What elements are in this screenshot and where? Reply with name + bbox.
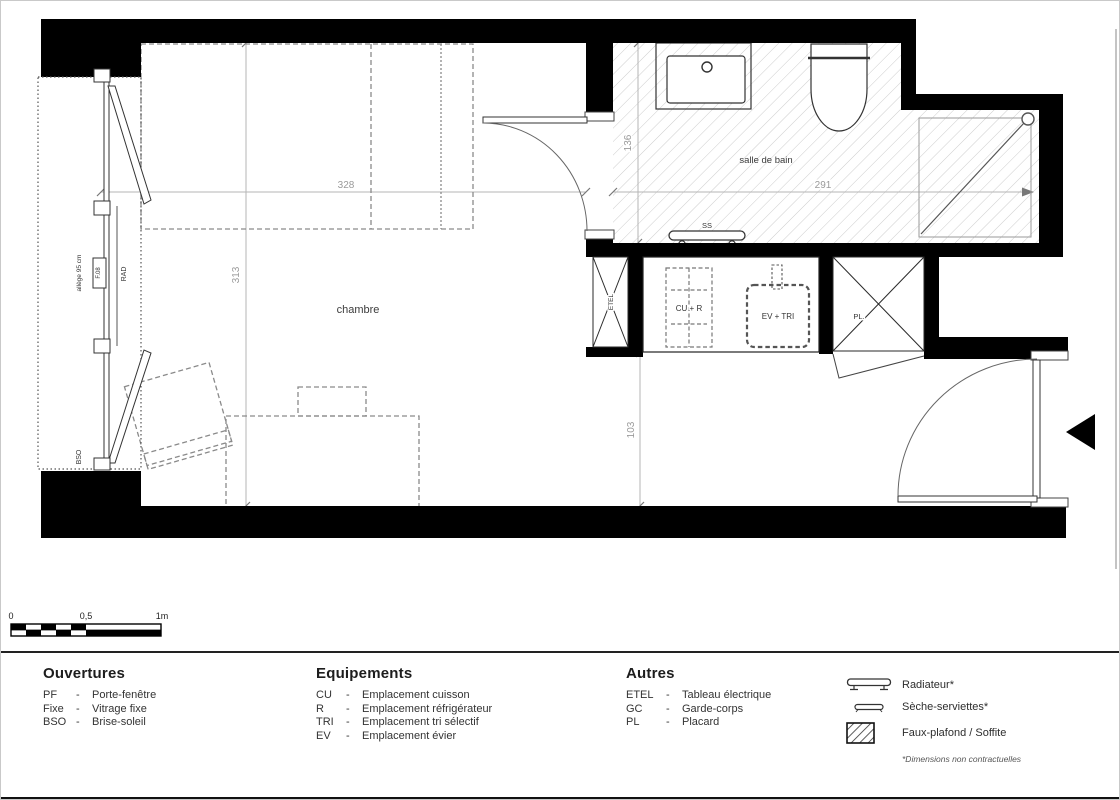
legend-label: Placard [682,716,719,730]
legend-abbr: PL [626,716,666,730]
legend-equipements: Equipements CU - Emplacement cuisson R -… [316,665,492,743]
dim-bedroom-depth: 313 [231,266,242,283]
label-sill: allège 95 cm [76,255,83,292]
legend-item: Fixe - Vitrage fixe [43,703,156,717]
legend-radiator-row: Radiateur* [846,677,1021,692]
label-sunbreak: BSO [76,449,83,464]
legend-soffit-label: Faux-plafond / Soffite [902,727,1006,739]
label-radiator: RAD [121,267,128,282]
shower-head [1022,113,1034,125]
closet-box [833,257,924,378]
legend-dash: - [666,703,682,717]
legend-item: R - Emplacement réfrigérateur [316,703,492,717]
legend-ouvertures-title: Ouvertures [43,665,156,682]
legend-towel-dryer-row: Sèche-serviettes* [846,701,1021,713]
label-closet: PL. [853,312,864,321]
legend-dash: - [346,703,362,717]
legend-dash: - [346,689,362,703]
soffit-hatch-icon [846,722,892,744]
desk [226,387,419,507]
legend-symbols: Radiateur* Sèche-serviettes* [846,677,1021,764]
floor-plan-svg: chambre salle de bain 328 291 313 136 10… [1,1,1120,651]
legend-item: GC - Garde-corps [626,703,771,717]
legend-abbr: Fixe [43,703,76,717]
legend-autres: Autres ETEL - Tableau électrique GC - Ga… [626,665,771,730]
dim-bathroom-depth: 136 [623,134,634,151]
entry-arrow-icon [1066,414,1095,450]
legend-label: Emplacement tri sélectif [362,716,479,730]
legend-label: Porte-fenêtre [92,689,156,703]
scale-05: 0,5 [80,611,93,621]
door-leaf [483,117,587,123]
window-bso [38,69,151,470]
label-electrical: ETEL [608,293,615,310]
room-label-bathroom: salle de bain [739,155,792,166]
label-sink-sorting: EV + TRI [762,312,795,321]
legend-towel-dryer-label: Sèche-serviettes* [902,701,988,713]
legend-abbr: R [316,703,346,717]
legend-abbr: BSO [43,716,76,730]
scale-0: 0 [8,611,13,621]
legend-dash: - [76,689,92,703]
legend-label: Tableau électrique [682,689,771,703]
legend-item: EV - Emplacement évier [316,730,492,744]
door-swing [898,359,1037,496]
window-sash-bottom [108,350,151,463]
dim-bathroom-width: 291 [815,180,832,191]
legend-item: PL - Placard [626,716,771,730]
legend-label: Brise-soleil [92,716,146,730]
legend-dash: - [346,716,362,730]
legend-abbr: EV [316,730,346,744]
door-leaf-closed [1033,360,1040,498]
legend-label: Emplacement évier [362,730,456,744]
legend-footnote: *Dimensions non contractuelles [902,754,1021,764]
closet-door-swing [833,354,924,378]
legend-equipements-title: Equipements [316,665,492,682]
scale-bar: 0 0,5 1m [8,611,168,636]
radiator-icon [846,677,892,692]
label-cooking-fridge: CU + R [676,304,703,313]
legend-item: BSO - Brise-soleil [43,716,156,730]
legend: Ouvertures PF - Porte-fenêtre Fixe - Vit… [1,651,1119,800]
legend-item: TRI - Emplacement tri sélectif [316,716,492,730]
room-label-bedroom: chambre [337,304,380,316]
dim-bedroom-width: 328 [338,180,355,191]
legend-soffit-row: Faux-plafond / Soffite [846,722,1021,744]
floor-plan: chambre salle de bain 328 291 313 136 10… [1,1,1120,651]
legend-ouvertures: Ouvertures PF - Porte-fenêtre Fixe - Vit… [43,665,156,730]
legend-dash: - [76,716,92,730]
bathroom-door [483,112,614,239]
legend-abbr: PF [43,689,76,703]
legend-abbr: GC [626,703,666,717]
legend-radiator-label: Radiateur* [902,679,954,691]
legend-item: CU - Emplacement cuisson [316,689,492,703]
legend-label: Garde-corps [682,703,743,717]
dim-hall-depth: 103 [626,421,637,438]
legend-label: Emplacement réfrigérateur [362,703,492,717]
label-window-ref: F.08 [96,267,102,279]
scale-1m: 1m [156,611,169,621]
legend-item: PF - Porte-fenêtre [43,689,156,703]
entry-door [898,351,1095,507]
bed [141,44,473,229]
legend-label: Emplacement cuisson [362,689,470,703]
door-leaf-open [898,496,1037,502]
legend-autres-title: Autres [626,665,771,682]
legend-dash: - [666,689,682,703]
window-sash-top [108,86,151,204]
sink-drain [702,62,712,72]
legend-dash: - [346,730,362,744]
legend-dash: - [666,716,682,730]
label-towel-rail: SS [702,221,712,230]
kitchen-niche [643,257,819,352]
legend-item: ETEL - Tableau électrique [626,689,771,703]
legend-dash: - [76,703,92,717]
towel-dryer-icon [846,701,892,713]
legend-abbr: CU [316,689,346,703]
floor-plan-sheet: chambre salle de bain 328 291 313 136 10… [0,0,1120,800]
legend-abbr: TRI [316,716,346,730]
door-swing [483,123,587,231]
legend-abbr: ETEL [626,689,666,703]
legend-label: Vitrage fixe [92,703,147,717]
